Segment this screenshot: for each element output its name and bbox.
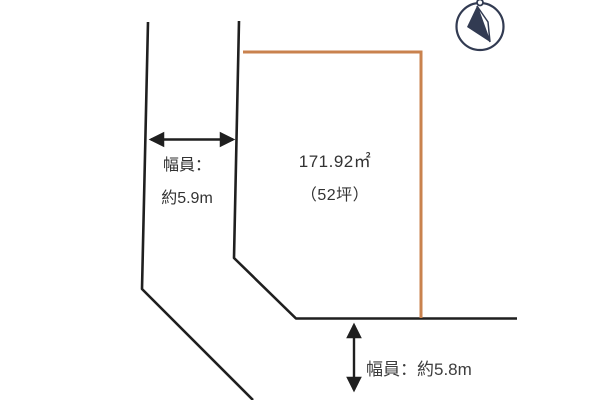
- west-road-width-title: 幅員：: [145, 151, 229, 175]
- plot-area-tsubo: （52坪）: [259, 181, 411, 205]
- west-road-width-value: 約5.9m: [145, 184, 229, 208]
- compass-top-loop: [477, 0, 483, 6]
- site-plan-diagram: 171.92㎡ （52坪） 幅員： 約5.9m 幅員：約5.8m: [0, 0, 600, 400]
- road-edge-west-outer: [142, 22, 253, 400]
- south-road-width-label: 幅員：約5.8m: [366, 355, 472, 380]
- plot-area-sqm: 171.92㎡: [259, 147, 411, 172]
- compass-north-arrow-icon: [457, 0, 504, 50]
- plot-area-label: 171.92㎡ （52坪）: [259, 147, 411, 205]
- west-road-width-label: 幅員： 約5.9m: [145, 151, 229, 208]
